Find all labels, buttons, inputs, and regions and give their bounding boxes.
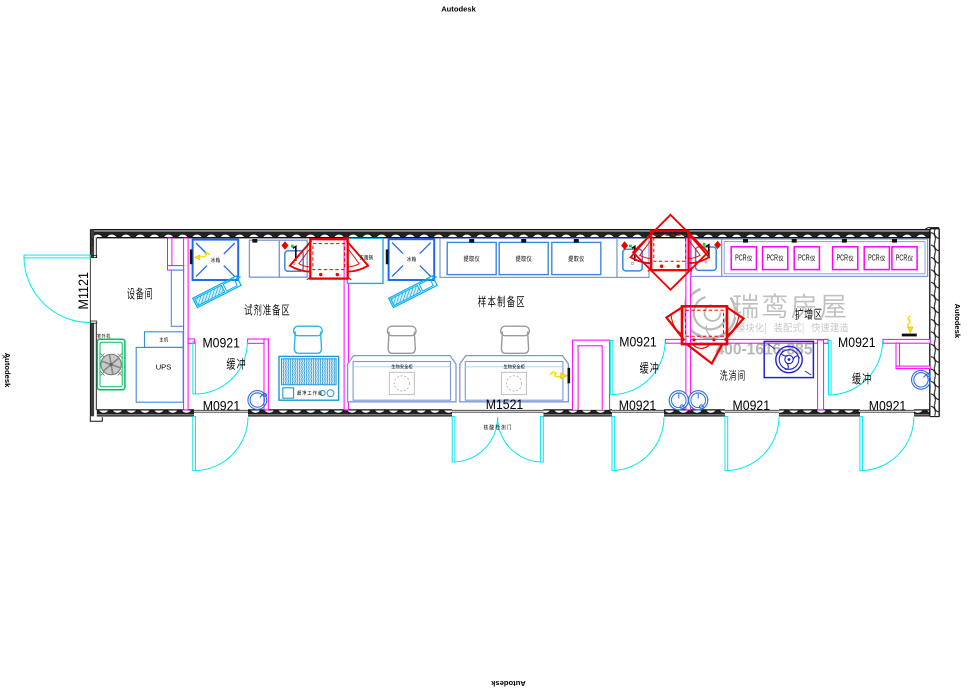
svg-text:Autodesk: Autodesk	[441, 5, 476, 14]
svg-text:UPS: UPS	[156, 363, 172, 372]
svg-text:M0921: M0921	[869, 399, 907, 414]
svg-text:M1121: M1121	[76, 272, 91, 310]
svg-text:PCR: PCR	[868, 254, 880, 263]
svg-text:M0921: M0921	[203, 398, 241, 413]
svg-text:Autodesk: Autodesk	[490, 679, 525, 688]
svg-text:PCR: PCR	[798, 254, 810, 263]
svg-text:PCR: PCR	[735, 254, 747, 263]
svg-text:M0921: M0921	[202, 335, 240, 350]
svg-text:M0921: M0921	[619, 335, 657, 350]
svg-text:M1521: M1521	[486, 397, 524, 412]
svg-text:M0921: M0921	[733, 398, 771, 413]
svg-text:PCR: PCR	[837, 254, 849, 263]
svg-text:M0921: M0921	[619, 398, 657, 413]
svg-text:Autodesk: Autodesk	[3, 353, 12, 388]
svg-text:M0921: M0921	[838, 335, 876, 350]
svg-text:PCR: PCR	[896, 254, 908, 263]
svg-text:PCR: PCR	[767, 254, 779, 263]
svg-text:Autodesk: Autodesk	[953, 303, 962, 338]
